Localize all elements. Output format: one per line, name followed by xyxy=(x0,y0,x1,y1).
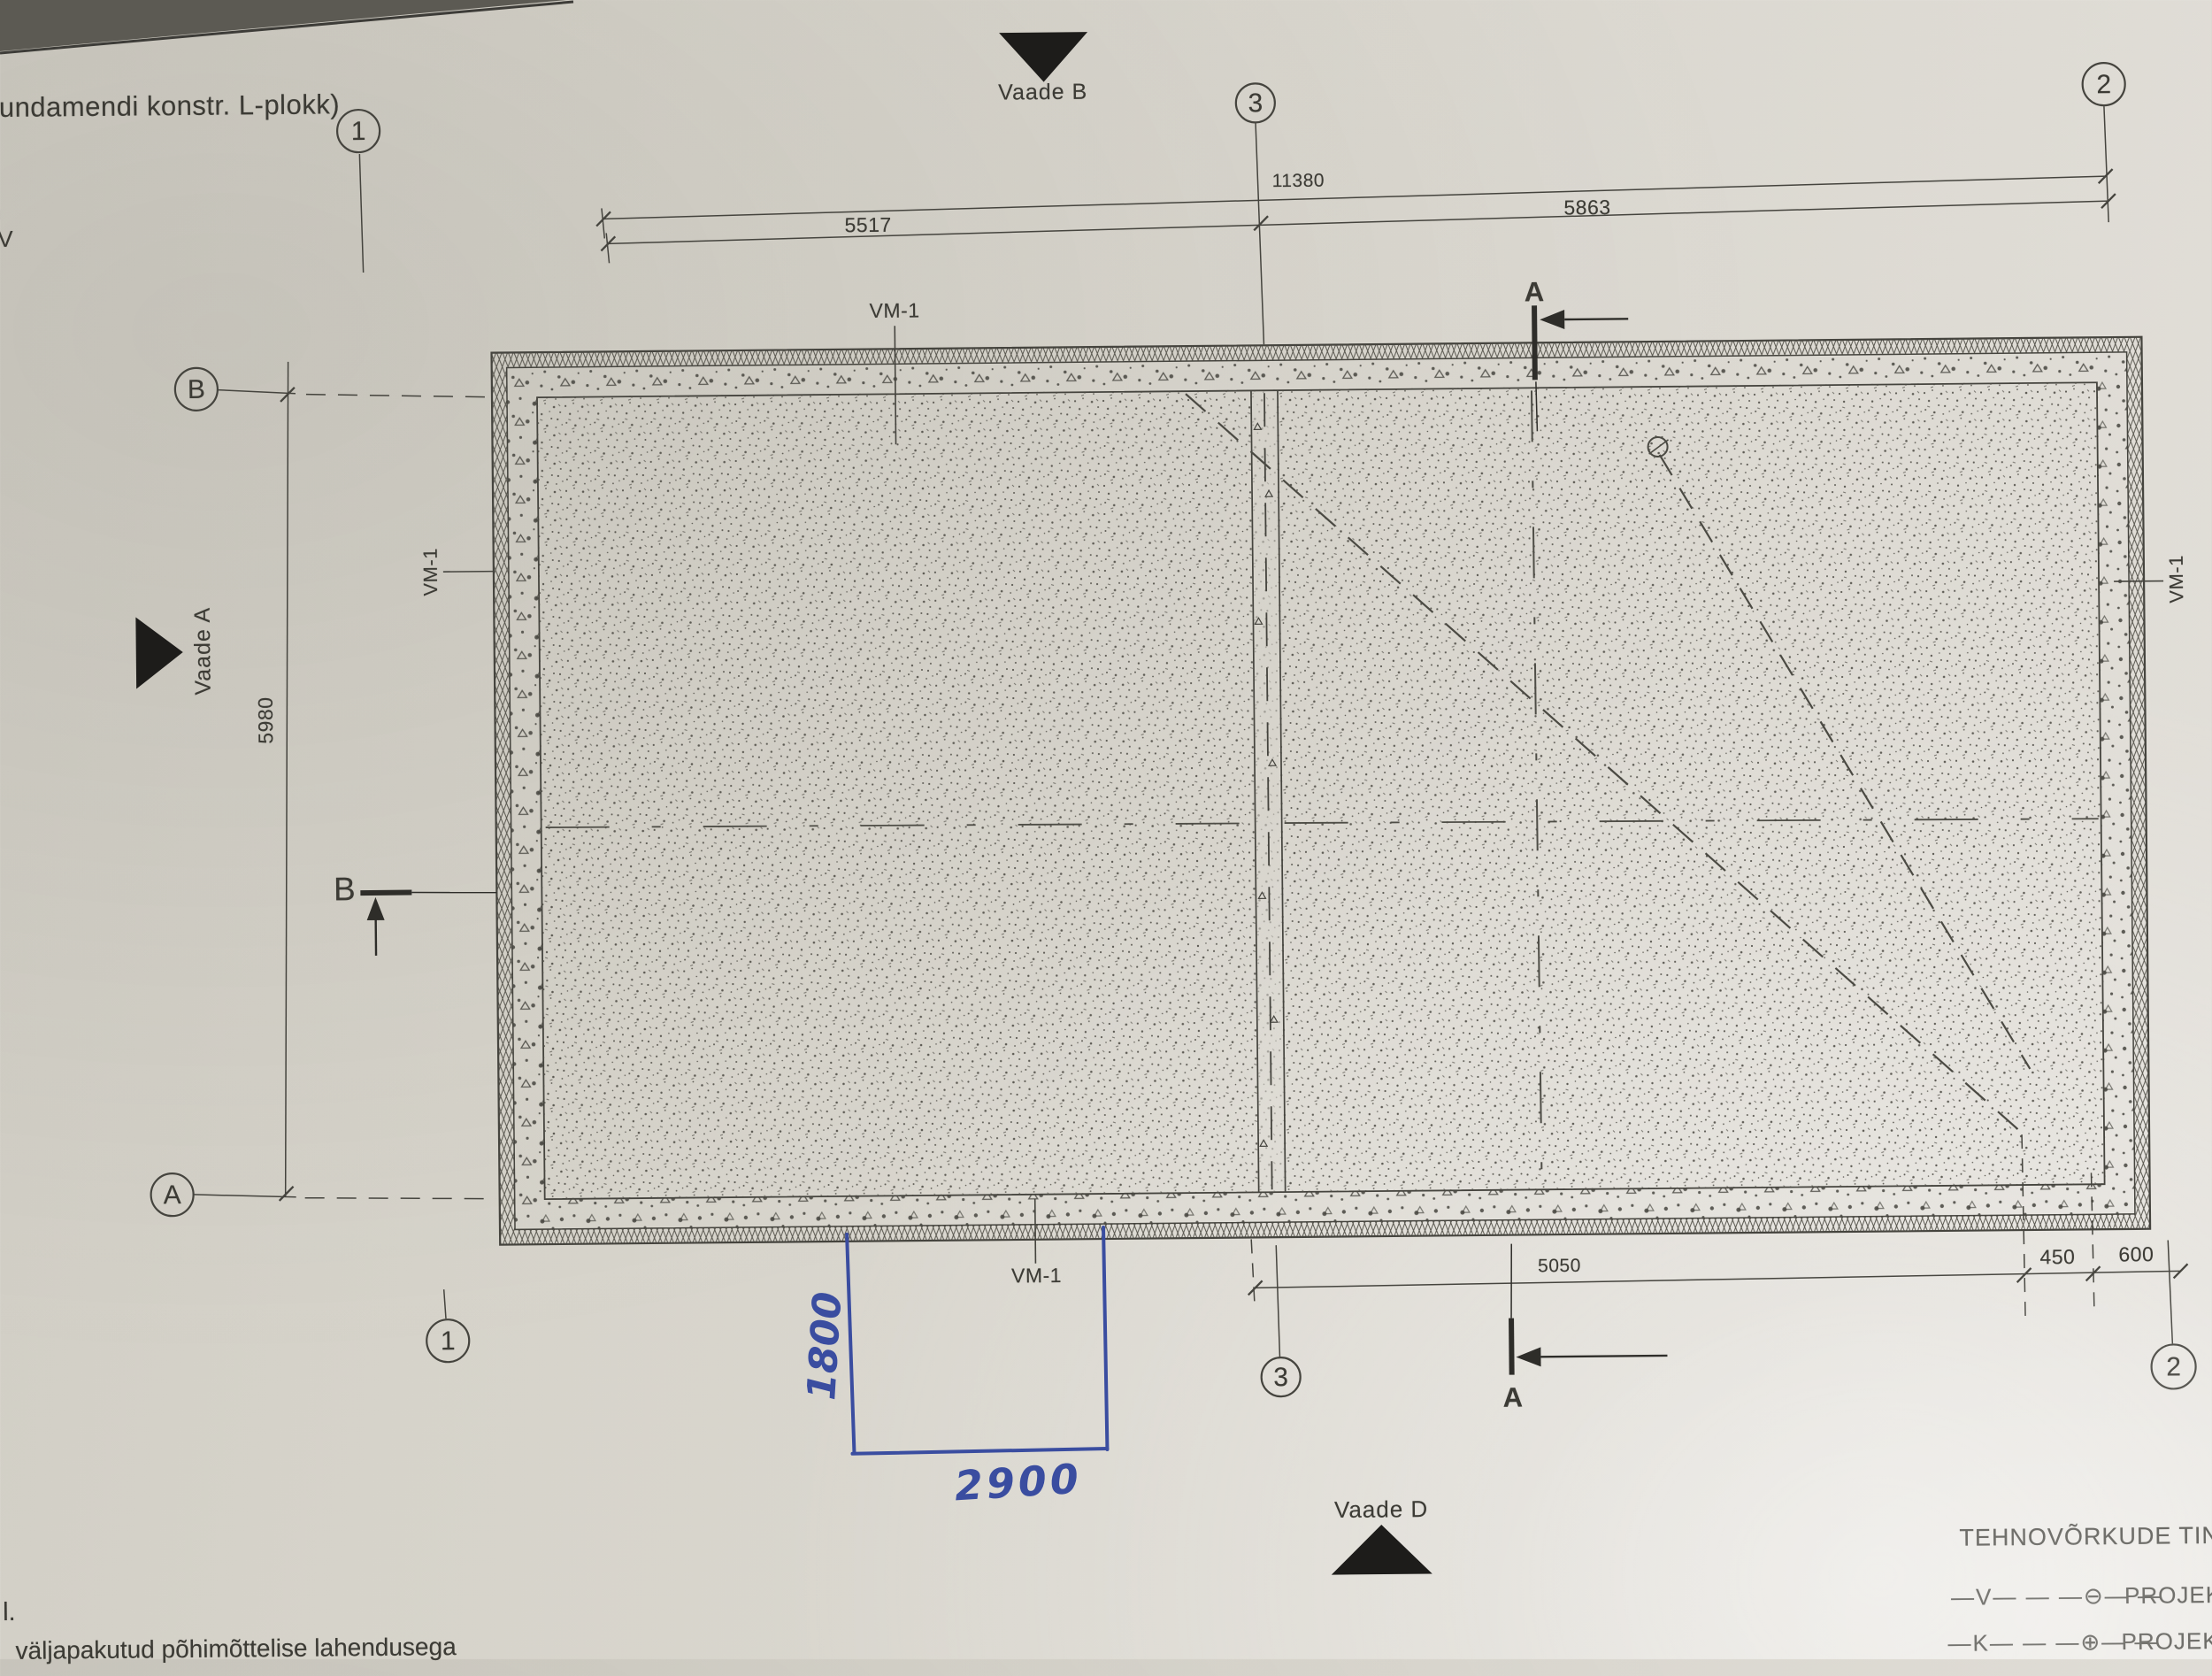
vm1-label-left: VM-1 xyxy=(419,548,443,596)
dim-span-left: 5517 xyxy=(844,213,891,238)
dim-total-width: 11380 xyxy=(1272,171,1325,193)
section-marker-b-left xyxy=(360,892,497,956)
dim-450: 450 xyxy=(2039,1245,2075,1269)
footer-fragment: l. xyxy=(3,1598,16,1627)
edge-text-fragment-2: V xyxy=(0,226,13,253)
view-d-triangle-icon xyxy=(1331,1525,1432,1575)
view-a-label: Vaade A xyxy=(190,607,217,696)
arrow-left-icon xyxy=(1516,1347,1540,1366)
dim-height-left: 5980 xyxy=(254,696,279,743)
footer-text: väljapakutud põhimõttelise lahendusega xyxy=(15,1633,456,1665)
handwritten-1800: 1800 xyxy=(799,1290,850,1401)
grid-label-1-top: 1 xyxy=(351,117,366,147)
slab-right-stipple xyxy=(1278,382,2105,1192)
legend-row1-label: PROJEKTET xyxy=(2124,1580,2212,1610)
dim-span-right: 5863 xyxy=(1563,196,1610,220)
legend-row2-label: PROJEKTE xyxy=(2121,1627,2212,1656)
vm1-label-top: VM-1 xyxy=(869,298,919,323)
view-d-label: Vaade D xyxy=(1334,1495,1429,1524)
drawing-sheet: Vundamendi konstr. L-plokk) n V Vaade B … xyxy=(0,0,2212,1670)
section-a-letter-top: A xyxy=(1525,276,1545,308)
grid-label-b-left: B xyxy=(188,375,205,405)
grid-label-3-bottom: 3 xyxy=(1273,1363,1288,1393)
dim-600: 600 xyxy=(2118,1242,2154,1266)
slab-left-stipple xyxy=(537,390,1259,1199)
vm1-label-bottom: VM-1 xyxy=(1011,1264,1062,1288)
photographed-blueprint: { "title": "Vundamendi konstr. L-plokk)"… xyxy=(0,0,2212,1659)
vm1-label-right: VM-1 xyxy=(2165,555,2189,604)
grid-label-1-bottom: 1 xyxy=(441,1326,456,1357)
foundation-plan-drawing xyxy=(0,0,2212,1670)
legend-title: TEHNOVÕRKUDE TINGMÄRGID xyxy=(1959,1521,2212,1552)
handwritten-blue-outline xyxy=(847,1227,1107,1454)
section-marker-a-bottom xyxy=(1510,1242,1667,1375)
section-b-letter: B xyxy=(334,871,356,908)
dim-line-5517-5863 xyxy=(608,201,2108,243)
handwritten-2900: 2900 xyxy=(953,1455,1083,1511)
dim-line-5980 xyxy=(278,362,296,1197)
grid-label-2-top: 2 xyxy=(2096,70,2111,100)
edge-text-fragment-1: n xyxy=(0,198,2,226)
view-a-triangle-icon xyxy=(135,617,183,689)
dim-line-11380 xyxy=(603,176,2106,219)
arrow-left-icon xyxy=(1540,310,1564,329)
drawing-title: Vundamendi konstr. L-plokk) xyxy=(0,88,340,124)
grid-label-3-top: 3 xyxy=(1248,88,1263,119)
view-b-triangle-icon xyxy=(999,32,1088,82)
section-a-letter-bottom: A xyxy=(1503,1382,1524,1414)
grid-label-a-left: A xyxy=(163,1180,180,1211)
arrow-up-icon xyxy=(366,897,384,920)
dim-span-bottom: 5050 xyxy=(1538,1256,1581,1277)
grid-label-2-bottom: 2 xyxy=(2166,1352,2181,1382)
view-b-label: Vaade B xyxy=(998,80,1087,106)
dim-line-5050-450-600 xyxy=(1256,1271,2181,1288)
